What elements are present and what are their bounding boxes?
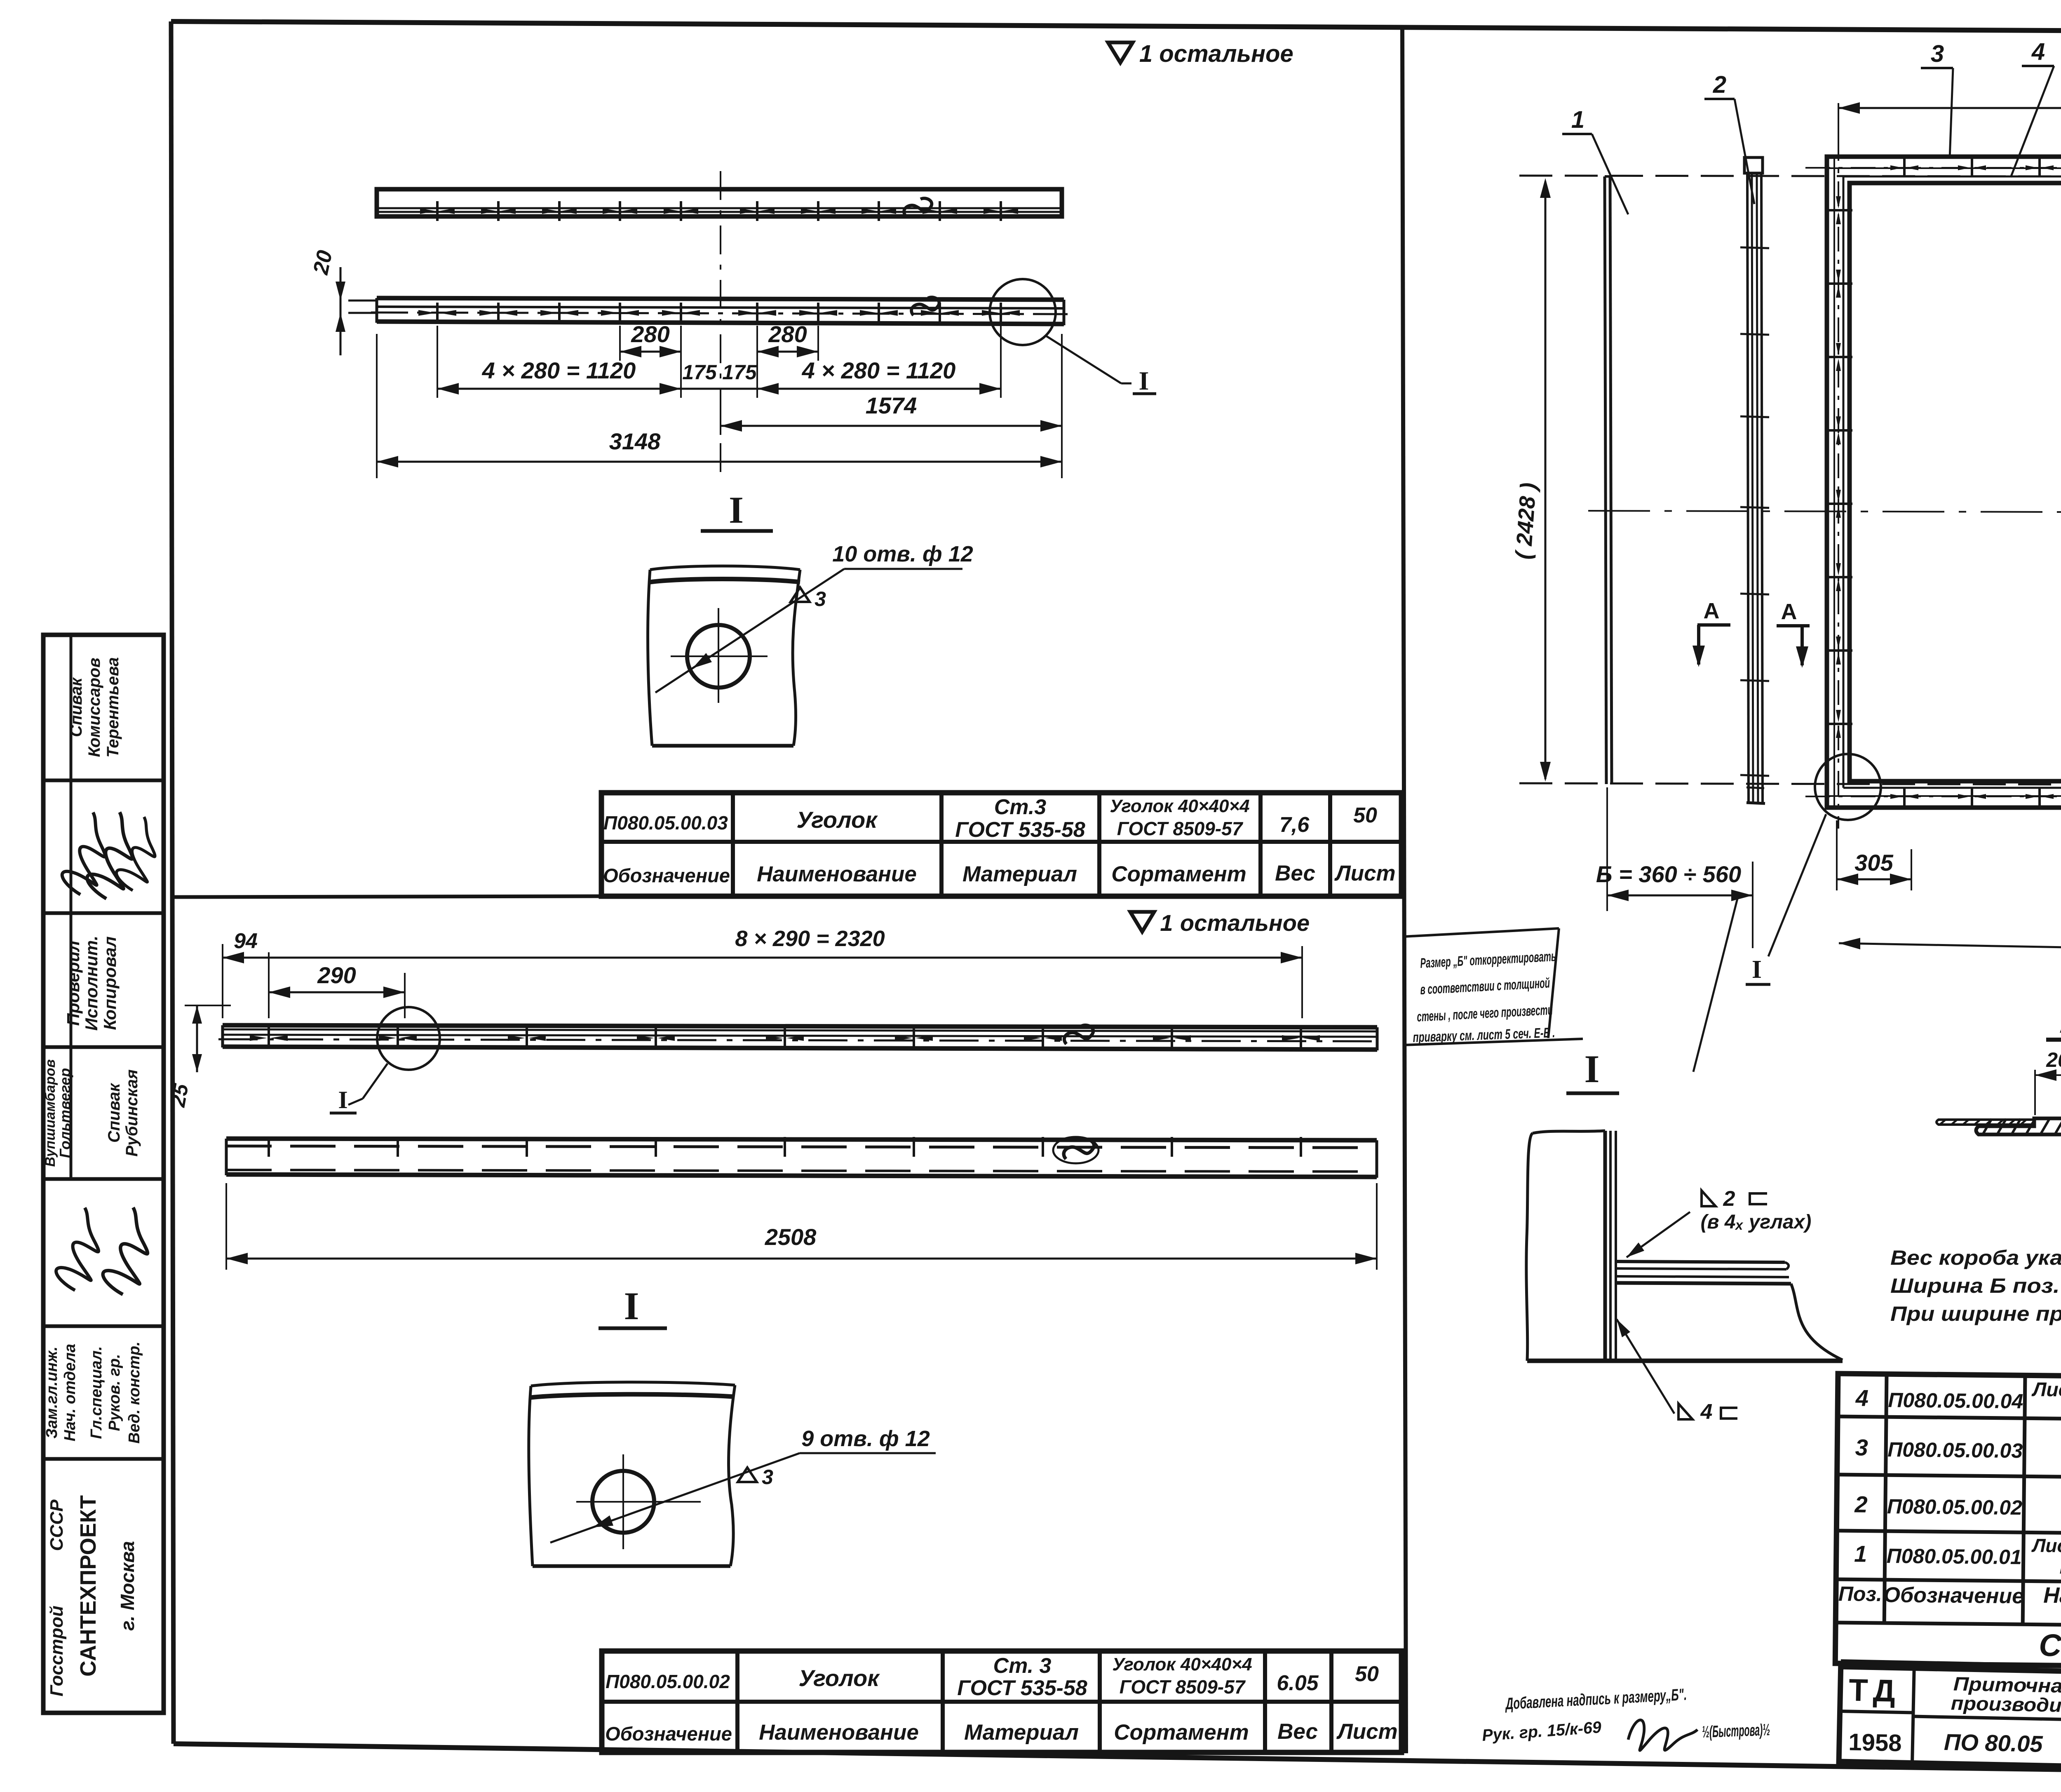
svg-text:А - А: А - А [2059,1010,2061,1038]
svg-text:(в 4ₓ углах): (в 4ₓ углах) [1701,1211,1812,1233]
svg-text:2: 2 [1854,1491,1868,1517]
svg-text:Госстрой: Госстрой [47,1606,67,1697]
svg-text:I: I [624,1284,639,1328]
svg-text:20: 20 [309,248,337,277]
svg-text:3: 3 [1931,40,1944,67]
svg-text:Гольтвегер: Гольтвегер [56,1068,73,1158]
svg-text:Спецификация: Спецификация [2039,1628,2061,1665]
svg-text:Уголок 40×40×4: Уголок 40×40×4 [1112,1654,1252,1675]
svg-text:Вес короба указан при толщ: Вес короба указан при толщине проема сте… [1890,1246,2061,1269]
svg-text:Обозначение: Обозначение [605,1723,732,1745]
svg-text:Лист В2,0×Б × 2426: Лист В2,0×Б × 2426 [2031,1535,2061,1558]
svg-text:2: 2 [1723,1187,1735,1211]
svg-text:3: 3 [762,1466,773,1489]
svg-text:ПО 80.05: ПО 80.05 [1944,1729,2043,1757]
svg-text:Терентьева: Терентьева [104,657,122,757]
svg-text:6.05: 6.05 [1277,1671,1319,1695]
svg-text:175: 175 [722,361,757,384]
svg-text:2508: 2508 [765,1224,817,1250]
svg-text:I: I [1584,1047,1600,1091]
svg-text:САНТЕХПРОЕКТ: САНТЕХПРОЕКТ [76,1495,101,1677]
svg-text:Поз.: Поз. [1838,1582,1882,1606]
svg-text:Наименование: Наименование [759,1720,919,1745]
svg-text:П080.05.00.01: П080.05.00.01 [1887,1544,2022,1569]
svg-text:П080.05.00.02: П080.05.00.02 [1887,1495,2023,1519]
svg-text:Обозначение: Обозначение [603,864,730,886]
svg-text:А: А [1704,599,1720,623]
svg-text:П080.05.00.04: П080.05.00.04 [1888,1388,2023,1413]
svg-text:Уголок 40×40×4: Уголок 40×40×4 [1110,796,1249,816]
svg-text:Гл.специал.: Гл.специал. [88,1346,105,1439]
svg-text:Вупшиамбаров: Вупшиамбаров [42,1059,58,1167]
svg-text:ГОСТ 535-58: ГОСТ 535-58 [955,818,1085,842]
svg-text:ГОСТ 8509-57: ГОСТ 8509-57 [1120,1676,1246,1698]
svg-text:2: 2 [1713,71,1726,98]
svg-text:4: 4 [1700,1400,1713,1424]
svg-text:Нач. отдела: Нач. отдела [61,1344,79,1442]
svg-text:280: 280 [768,321,807,347]
svg-text:ГОСТ 3680-57: ГОСТ 3680-57 [2059,1556,2061,1579]
svg-text:Ширина Б поз. 1 и поз. 4 п: Ширина Б поз. 1 и поз. 4 при этом равна … [1890,1274,2061,1297]
svg-text:П080.05.00.03: П080.05.00.03 [1887,1438,2023,1462]
svg-text:Уголок: Уголок [798,1665,880,1691]
svg-text:Уголок: Уголок [796,807,878,833]
svg-text:Руков. гр.: Руков. гр. [106,1354,123,1431]
svg-text:1: 1 [1139,40,1153,67]
svg-text:Спивак: Спивак [67,677,85,737]
svg-text:1: 1 [1854,1541,1867,1567]
svg-text:I: I [729,489,744,531]
svg-text:3: 3 [815,587,826,611]
svg-text:4 × 280 = 1120: 4 × 280 = 1120 [482,357,636,383]
svg-text:290: 290 [317,962,356,988]
svg-text:I: I [1752,956,1762,984]
svg-text:Материал: Материал [964,1720,1079,1745]
svg-text:ГОСТ 535-58: ГОСТ 535-58 [957,1676,1087,1700]
svg-text:Копировал: Копировал [100,936,120,1030]
svg-text:94: 94 [234,929,258,953]
svg-text:П080.05.00.02: П080.05.00.02 [606,1671,730,1692]
svg-text:Комиссаров: Комиссаров [85,658,103,757]
svg-text:Сортамент: Сортамент [1111,862,1246,886]
svg-text:Ст. 3: Ст. 3 [993,1654,1052,1678]
svg-text:г. Москва: г. Москва [117,1541,138,1631]
svg-text:Материал: Материал [962,862,1077,886]
svg-text:9 отв. ф 12: 9 отв. ф 12 [801,1426,930,1451]
svg-text:Обозначение: Обозначение [1883,1583,2024,1608]
svg-text:Исполнит.: Исполнит. [82,936,101,1031]
svg-text:7,6: 7,6 [1279,813,1310,837]
svg-text:10 отв. ф 12: 10 отв. ф 12 [832,542,973,566]
svg-text:4: 4 [2031,38,2045,65]
svg-text:Ст.3: Ст.3 [994,795,1047,819]
svg-text:175: 175 [682,361,717,384]
svg-text:А: А [1781,599,1797,624]
svg-text:I: I [338,1086,347,1113]
svg-text:4 × 280 = 1120: 4 × 280 = 1120 [802,357,956,383]
svg-text:СССР: СССР [47,1499,67,1551]
svg-text:Наименование: Наименование [757,862,917,886]
svg-text:При ширине проема стены 3: При ширине проема стены 300 мм. В₁ равна… [1890,1302,2061,1325]
svg-text:Наименование: Наименование [2043,1583,2061,1609]
svg-text:Проверил: Проверил [63,941,83,1026]
svg-text:Вес: Вес [1275,861,1315,885]
svg-text:8 × 290 = 2320: 8 × 290 = 2320 [735,926,885,951]
svg-text:305: 305 [1854,850,1893,876]
svg-text:4: 4 [1855,1385,1869,1411]
svg-text:П080.05.00.03: П080.05.00.03 [603,812,728,834]
svg-text:20: 20 [2046,1048,2061,1071]
svg-text:I: I [1139,366,1149,395]
svg-text:Лист В2.0×Б ×3144: Лист В2.0×Б ×3144 [2031,1379,2061,1402]
svg-text:Б = 360 ÷ 560: Б = 360 ÷ 560 [1596,861,1741,887]
svg-text:остальное: остальное [1159,40,1293,67]
svg-text:Спивак: Спивак [105,1083,123,1143]
svg-text:Вед. констр.: Вед. констр. [126,1341,143,1444]
svg-text:3148: 3148 [609,428,661,454]
svg-text:3: 3 [1855,1434,1868,1460]
svg-text:½(Быстрова)½: ½(Быстрова)½ [1702,1721,1770,1741]
svg-text:остальное: остальное [1180,910,1310,936]
svg-text:Вес: Вес [1277,1719,1318,1744]
svg-text:Сортамент: Сортамент [1114,1720,1249,1745]
svg-text:ГОСТ 8509-57: ГОСТ 8509-57 [1117,818,1244,839]
svg-text:25: 25 [166,1082,193,1109]
svg-text:1: 1 [1160,910,1173,936]
svg-text:Рубинская: Рубинская [123,1069,141,1157]
svg-text:Лист: Лист [1334,861,1395,885]
svg-text:ТД: ТД [1848,1672,1901,1709]
svg-text:280: 280 [631,321,669,347]
svg-text:1: 1 [1571,106,1584,133]
svg-text:Зам.гл.инж.: Зам.гл.инж. [43,1346,61,1438]
svg-text:1958: 1958 [1848,1729,1902,1757]
svg-text:50: 50 [1355,1662,1379,1686]
svg-text:1574: 1574 [866,392,917,418]
svg-text:50: 50 [1353,803,1377,827]
svg-text:Лист: Лист [1336,1719,1397,1744]
